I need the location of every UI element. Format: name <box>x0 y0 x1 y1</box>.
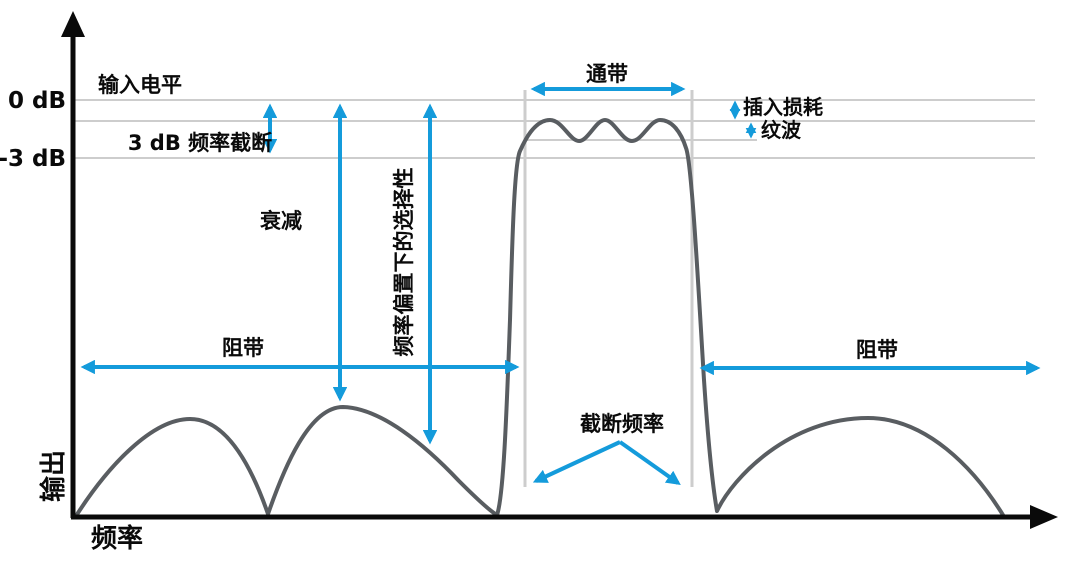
label-cutoff-3db: 3 dB 频率截断 <box>128 131 272 155</box>
y-axis-arrowhead-icon <box>61 11 85 37</box>
label-attenuation: 衰减 <box>260 209 302 233</box>
label-input-level: 输入电平 <box>98 73 182 97</box>
filter-response-diagram: 0 dB -3 dB 输入电平 3 dB 频率截断 衰减 频率偏置下的选择性 阻… <box>0 0 1080 569</box>
x-axis-arrowhead-icon <box>1030 505 1058 529</box>
label-insertion-loss: 插入损耗 <box>743 95 823 119</box>
label-ripple: 纹波 <box>761 118 802 142</box>
cutoff-frequency-arrow-right <box>620 442 678 483</box>
label-stopband-left: 阻带 <box>222 336 264 360</box>
y-tick-0db: 0 dB <box>8 88 66 114</box>
y-tick-minus3db: -3 dB <box>0 146 66 172</box>
cutoff-frequency-arrow-left <box>536 442 620 481</box>
x-axis-label: 频率 <box>91 523 143 554</box>
label-cutoff-frequency: 截断频率 <box>580 412 664 436</box>
y-axis-label: 输出 <box>38 450 69 502</box>
label-selectivity: 频率偏置下的选择性 <box>392 168 416 357</box>
label-passband: 通带 <box>586 62 628 86</box>
label-stopband-right: 阻带 <box>856 338 898 362</box>
response-curve <box>76 120 1003 516</box>
diagram-canvas: 0 dB -3 dB 输入电平 3 dB 频率截断 衰减 频率偏置下的选择性 阻… <box>0 0 1080 569</box>
